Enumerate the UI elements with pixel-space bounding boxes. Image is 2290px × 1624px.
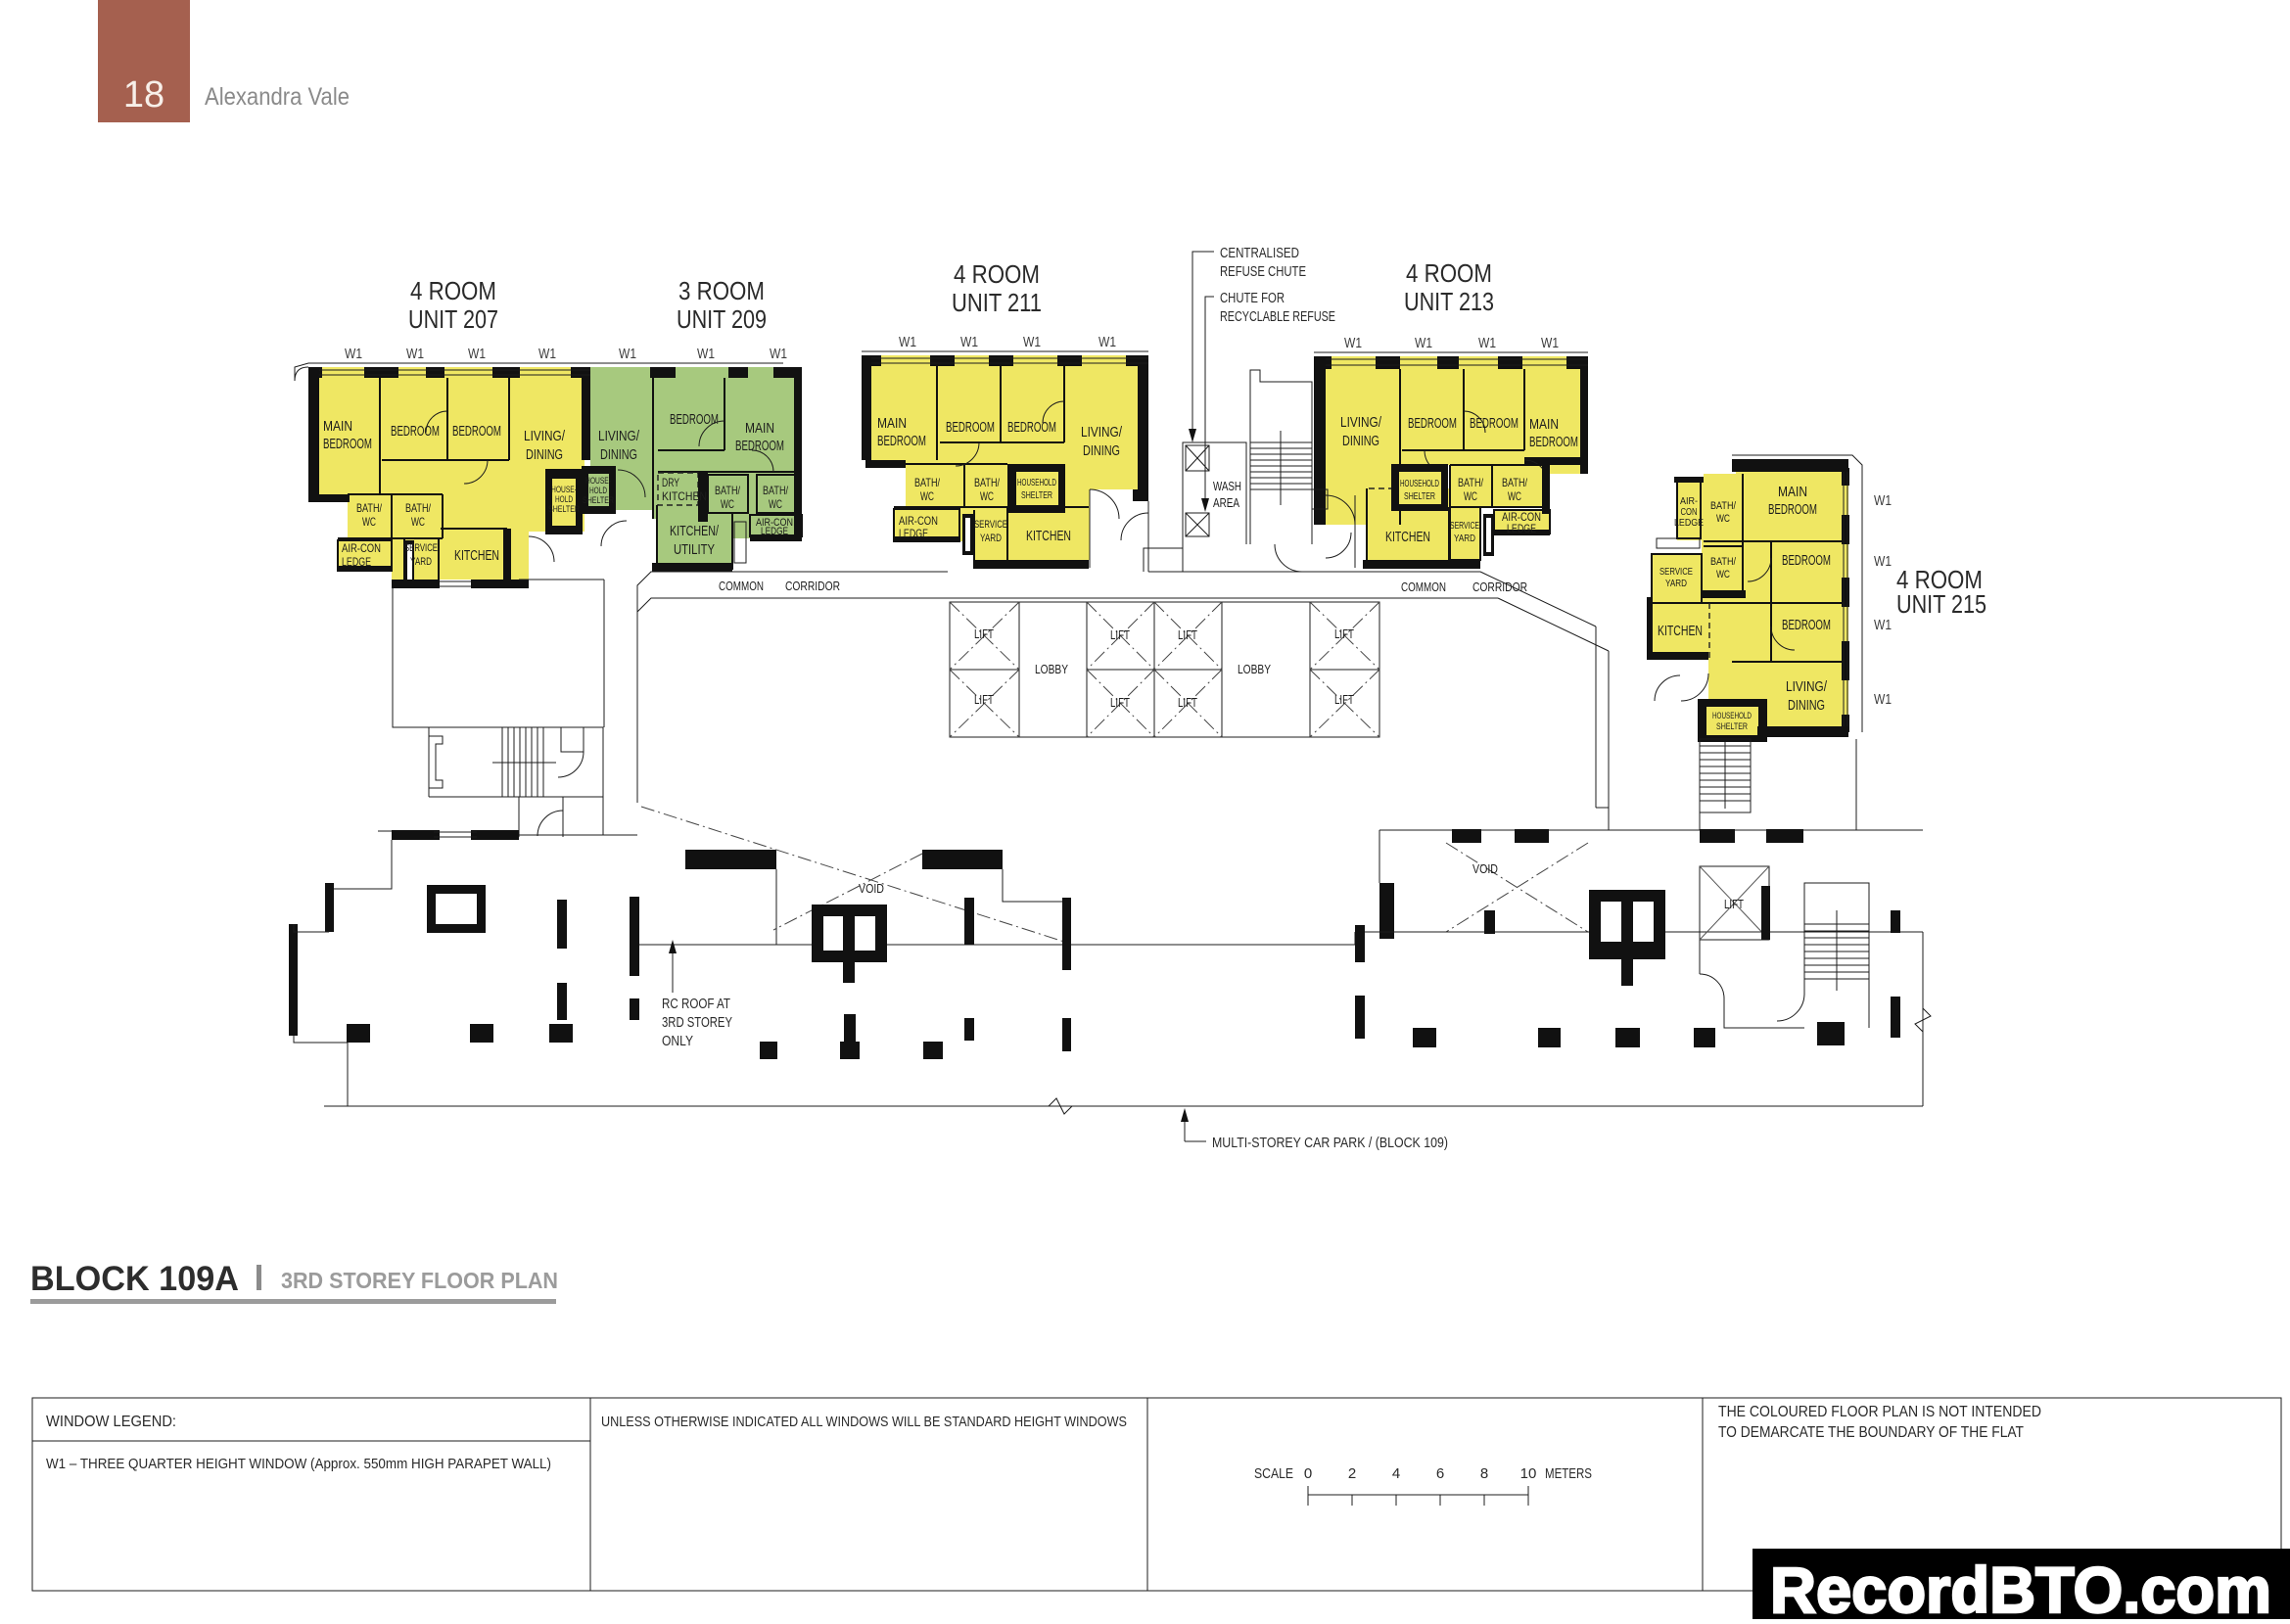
svg-text:WC: WC xyxy=(362,515,376,529)
svg-text:DINING: DINING xyxy=(526,446,563,463)
svg-text:UTILITY: UTILITY xyxy=(674,541,715,558)
svg-text:BEDROOM: BEDROOM xyxy=(1768,501,1817,518)
svg-text:BATH/: BATH/ xyxy=(1502,476,1527,489)
svg-text:METERS: METERS xyxy=(1545,1465,1592,1482)
svg-text:TO DEMARCATE THE BOUNDARY OF T: TO DEMARCATE THE BOUNDARY OF THE FLAT xyxy=(1718,1424,2024,1441)
svg-text:YARD: YARD xyxy=(1454,534,1475,544)
svg-text:W1: W1 xyxy=(1874,553,1892,570)
svg-text:UNIT 211: UNIT 211 xyxy=(952,288,1042,317)
svg-text:COMMON: COMMON xyxy=(1401,580,1446,594)
svg-text:YARD: YARD xyxy=(980,533,1002,544)
svg-text:SERVICE: SERVICE xyxy=(1450,521,1479,532)
svg-text:LIFT: LIFT xyxy=(1724,897,1744,911)
svg-text:LOBBY: LOBBY xyxy=(1238,662,1271,676)
svg-text:CON: CON xyxy=(1681,507,1698,518)
svg-text:LEDGE: LEDGE xyxy=(899,527,928,540)
svg-text:DINING: DINING xyxy=(1342,433,1379,449)
svg-text:MAIN: MAIN xyxy=(1778,484,1807,500)
svg-text:LIFT: LIFT xyxy=(1178,695,1197,710)
svg-text:4 ROOM: 4 ROOM xyxy=(954,259,1040,289)
svg-text:RC ROOF AT: RC ROOF AT xyxy=(662,996,730,1012)
svg-text:HOUSEHOLD: HOUSEHOLD xyxy=(1400,479,1439,489)
svg-text:BATH/: BATH/ xyxy=(1458,476,1483,489)
svg-text:WC: WC xyxy=(920,489,934,503)
svg-text:CHUTE FOR: CHUTE FOR xyxy=(1220,290,1285,306)
svg-text:6: 6 xyxy=(1436,1465,1444,1482)
svg-text:W1: W1 xyxy=(899,334,916,350)
svg-text:CORRIDOR: CORRIDOR xyxy=(785,579,840,593)
svg-text:BEDROOM: BEDROOM xyxy=(323,436,372,452)
svg-text:MAIN: MAIN xyxy=(745,420,774,437)
svg-text:BEDROOM: BEDROOM xyxy=(1529,434,1578,450)
svg-text:UNIT 215: UNIT 215 xyxy=(1896,589,1986,619)
svg-text:AREA: AREA xyxy=(1213,495,1239,510)
svg-text:W1: W1 xyxy=(406,346,424,362)
svg-text:KITCHEN: KITCHEN xyxy=(662,489,707,503)
svg-text:W1: W1 xyxy=(1874,492,1892,509)
svg-text:BEDROOM: BEDROOM xyxy=(1782,552,1831,569)
svg-text:MAIN: MAIN xyxy=(323,418,352,435)
svg-text:DINING: DINING xyxy=(1788,697,1825,714)
svg-text:BEDROOM: BEDROOM xyxy=(670,411,719,428)
svg-text:BEDROOM: BEDROOM xyxy=(946,419,995,436)
svg-text:KITCHEN: KITCHEN xyxy=(1658,623,1703,639)
svg-text:WC: WC xyxy=(1508,489,1521,503)
svg-text:W1: W1 xyxy=(1541,335,1559,351)
svg-text:W1: W1 xyxy=(468,346,486,362)
svg-text:BEDROOM: BEDROOM xyxy=(1470,415,1519,432)
svg-text:WC: WC xyxy=(769,497,782,511)
svg-text:BATH/: BATH/ xyxy=(763,484,788,497)
svg-text:SERVICE: SERVICE xyxy=(1659,567,1693,578)
svg-text:WC: WC xyxy=(1716,569,1730,580)
svg-text:SERVICE: SERVICE xyxy=(404,542,438,554)
svg-text:SHELTER: SHELTER xyxy=(548,504,580,515)
svg-text:BEDROOM: BEDROOM xyxy=(1007,419,1056,436)
svg-text:WC: WC xyxy=(721,497,734,511)
svg-text:3RD STOREY: 3RD STOREY xyxy=(662,1014,732,1031)
svg-text:COMMON: COMMON xyxy=(719,579,764,593)
svg-text:LEDGE: LEDGE xyxy=(761,526,788,537)
svg-text:BATH/: BATH/ xyxy=(1710,556,1737,568)
svg-text:18: 18 xyxy=(123,74,164,116)
svg-text:SHELTER: SHELTER xyxy=(1021,490,1052,501)
svg-text:REFUSE CHUTE: REFUSE CHUTE xyxy=(1220,263,1306,280)
svg-text:LIFT: LIFT xyxy=(974,692,994,707)
svg-text:W1: W1 xyxy=(960,334,978,350)
svg-text:DRY: DRY xyxy=(662,476,679,489)
svg-text:3RD STOREY FLOOR PLAN: 3RD STOREY FLOOR PLAN xyxy=(281,1268,558,1293)
svg-text:BATH/: BATH/ xyxy=(356,501,382,515)
svg-text:W1 – THREE QUARTER HEIGHT: W1 – THREE QUARTER HEIGHT WINDOW (Approx… xyxy=(46,1456,551,1472)
svg-text:THE COLOURED FLOOR PLAN IS NOT: THE COLOURED FLOOR PLAN IS NOT INTENDED xyxy=(1718,1404,2041,1420)
svg-text:KITCHEN: KITCHEN xyxy=(1026,528,1071,544)
svg-text:AIR-CON: AIR-CON xyxy=(342,541,381,555)
svg-text:BEDROOM: BEDROOM xyxy=(391,423,440,440)
svg-text:W1: W1 xyxy=(619,346,636,362)
svg-text:BLOCK 109A: BLOCK 109A xyxy=(30,1260,239,1298)
svg-text:WINDOW LEGEND:: WINDOW LEGEND: xyxy=(46,1414,176,1430)
svg-text:MAIN: MAIN xyxy=(1529,416,1559,433)
svg-text:KITCHEN/: KITCHEN/ xyxy=(670,523,720,539)
svg-text:SHELTER: SHELTER xyxy=(583,495,614,506)
svg-text:4 ROOM: 4 ROOM xyxy=(1406,258,1492,288)
svg-text:SCALE: SCALE xyxy=(1254,1465,1293,1482)
svg-text:0: 0 xyxy=(1304,1465,1312,1482)
svg-text:BATH/: BATH/ xyxy=(1710,500,1737,512)
svg-text:BATH/: BATH/ xyxy=(974,476,1000,489)
svg-text:W1: W1 xyxy=(345,346,362,362)
svg-text:Alexandra Vale: Alexandra Vale xyxy=(205,83,350,111)
svg-text:WC: WC xyxy=(1464,489,1477,503)
svg-text:CORRIDOR: CORRIDOR xyxy=(1472,580,1527,594)
svg-text:BATH/: BATH/ xyxy=(405,501,431,515)
svg-text:4 ROOM: 4 ROOM xyxy=(410,276,496,305)
svg-text:KITCHEN: KITCHEN xyxy=(454,547,499,564)
svg-text:BATH/: BATH/ xyxy=(914,476,940,489)
svg-text:VOID: VOID xyxy=(859,881,884,896)
svg-text:LIFT: LIFT xyxy=(1178,627,1197,642)
svg-text:WC: WC xyxy=(411,515,425,529)
svg-text:YARD: YARD xyxy=(410,556,432,568)
svg-text:CENTRALISED: CENTRALISED xyxy=(1220,245,1299,261)
svg-text:RecordBTO.com: RecordBTO.com xyxy=(1770,1554,2271,1619)
svg-text:BEDROOM: BEDROOM xyxy=(735,438,784,454)
svg-text:W1: W1 xyxy=(1415,335,1432,351)
svg-text:LEDGE: LEDGE xyxy=(1507,522,1536,535)
svg-text:HOUSEHOLD: HOUSEHOLD xyxy=(1712,711,1752,721)
svg-text:SHELTER: SHELTER xyxy=(1404,491,1435,502)
svg-text:LIFT: LIFT xyxy=(974,626,994,641)
svg-text:ONLY: ONLY xyxy=(662,1033,693,1049)
svg-text:W1: W1 xyxy=(1478,335,1496,351)
svg-text:UNIT 207: UNIT 207 xyxy=(408,304,498,334)
svg-text:LIVING/: LIVING/ xyxy=(1786,678,1828,695)
svg-text:VOID: VOID xyxy=(1472,861,1498,876)
svg-text:SHELTER: SHELTER xyxy=(1716,721,1748,732)
svg-text:W1: W1 xyxy=(770,346,787,362)
svg-text:LIFT: LIFT xyxy=(1334,626,1354,641)
svg-text:W1: W1 xyxy=(697,346,715,362)
svg-text:WC: WC xyxy=(980,489,994,503)
svg-text:LIVING/: LIVING/ xyxy=(598,428,640,444)
svg-text:8: 8 xyxy=(1480,1465,1488,1482)
svg-text:BEDROOM: BEDROOM xyxy=(1408,415,1457,432)
svg-text:UNLESS OTHERWISE INDICATED: UNLESS OTHERWISE INDICATED ALL WINDOWS W… xyxy=(601,1414,1127,1430)
svg-text:LIFT: LIFT xyxy=(1334,692,1354,707)
svg-text:LOBBY: LOBBY xyxy=(1035,662,1068,676)
svg-text:AIR-CON: AIR-CON xyxy=(899,514,938,528)
svg-text:10: 10 xyxy=(1520,1465,1537,1482)
svg-text:W1: W1 xyxy=(1023,334,1041,350)
svg-text:WC: WC xyxy=(1716,513,1730,525)
svg-text:W1: W1 xyxy=(1344,335,1362,351)
svg-text:LEDGE: LEDGE xyxy=(342,555,371,569)
svg-text:W1: W1 xyxy=(1874,691,1892,708)
svg-text:LIVING/: LIVING/ xyxy=(1340,414,1382,431)
svg-text:YARD: YARD xyxy=(1665,579,1687,589)
svg-text:BEDROOM: BEDROOM xyxy=(452,423,501,440)
svg-text:UNIT 209: UNIT 209 xyxy=(677,304,767,334)
svg-text:LEDGE: LEDGE xyxy=(1674,518,1704,529)
svg-text:W1: W1 xyxy=(538,346,556,362)
svg-text:WASH: WASH xyxy=(1213,479,1241,493)
svg-text:HOUSEHOLD: HOUSEHOLD xyxy=(1017,478,1056,488)
svg-text:DINING: DINING xyxy=(600,446,637,463)
svg-text:LIVING/: LIVING/ xyxy=(1081,424,1123,441)
svg-text:4: 4 xyxy=(1392,1465,1400,1482)
svg-text:DINING: DINING xyxy=(1083,442,1120,459)
svg-text:BATH/: BATH/ xyxy=(715,484,740,497)
svg-text:2: 2 xyxy=(1348,1465,1356,1482)
svg-text:UNIT 213: UNIT 213 xyxy=(1404,287,1494,316)
svg-text:AIR-: AIR- xyxy=(1680,496,1698,507)
svg-text:SERVICE: SERVICE xyxy=(974,519,1007,531)
svg-text:BEDROOM: BEDROOM xyxy=(1782,617,1831,633)
svg-text:LIFT: LIFT xyxy=(1110,695,1130,710)
svg-text:W1: W1 xyxy=(1874,617,1892,633)
svg-text:BEDROOM: BEDROOM xyxy=(877,433,926,449)
svg-text:KITCHEN: KITCHEN xyxy=(1385,529,1430,545)
svg-text:RECYCLABLE REFUSE: RECYCLABLE REFUSE xyxy=(1220,308,1335,325)
svg-text:3 ROOM: 3 ROOM xyxy=(678,276,765,305)
svg-text:LIFT: LIFT xyxy=(1110,627,1130,642)
svg-text:LIVING/: LIVING/ xyxy=(524,428,566,444)
svg-text:MULTI-STOREY CAR PARK / (BLOCK: MULTI-STOREY CAR PARK / (BLOCK 109) xyxy=(1212,1135,1448,1151)
svg-text:MAIN: MAIN xyxy=(877,415,907,432)
svg-text:W1: W1 xyxy=(1098,334,1116,350)
